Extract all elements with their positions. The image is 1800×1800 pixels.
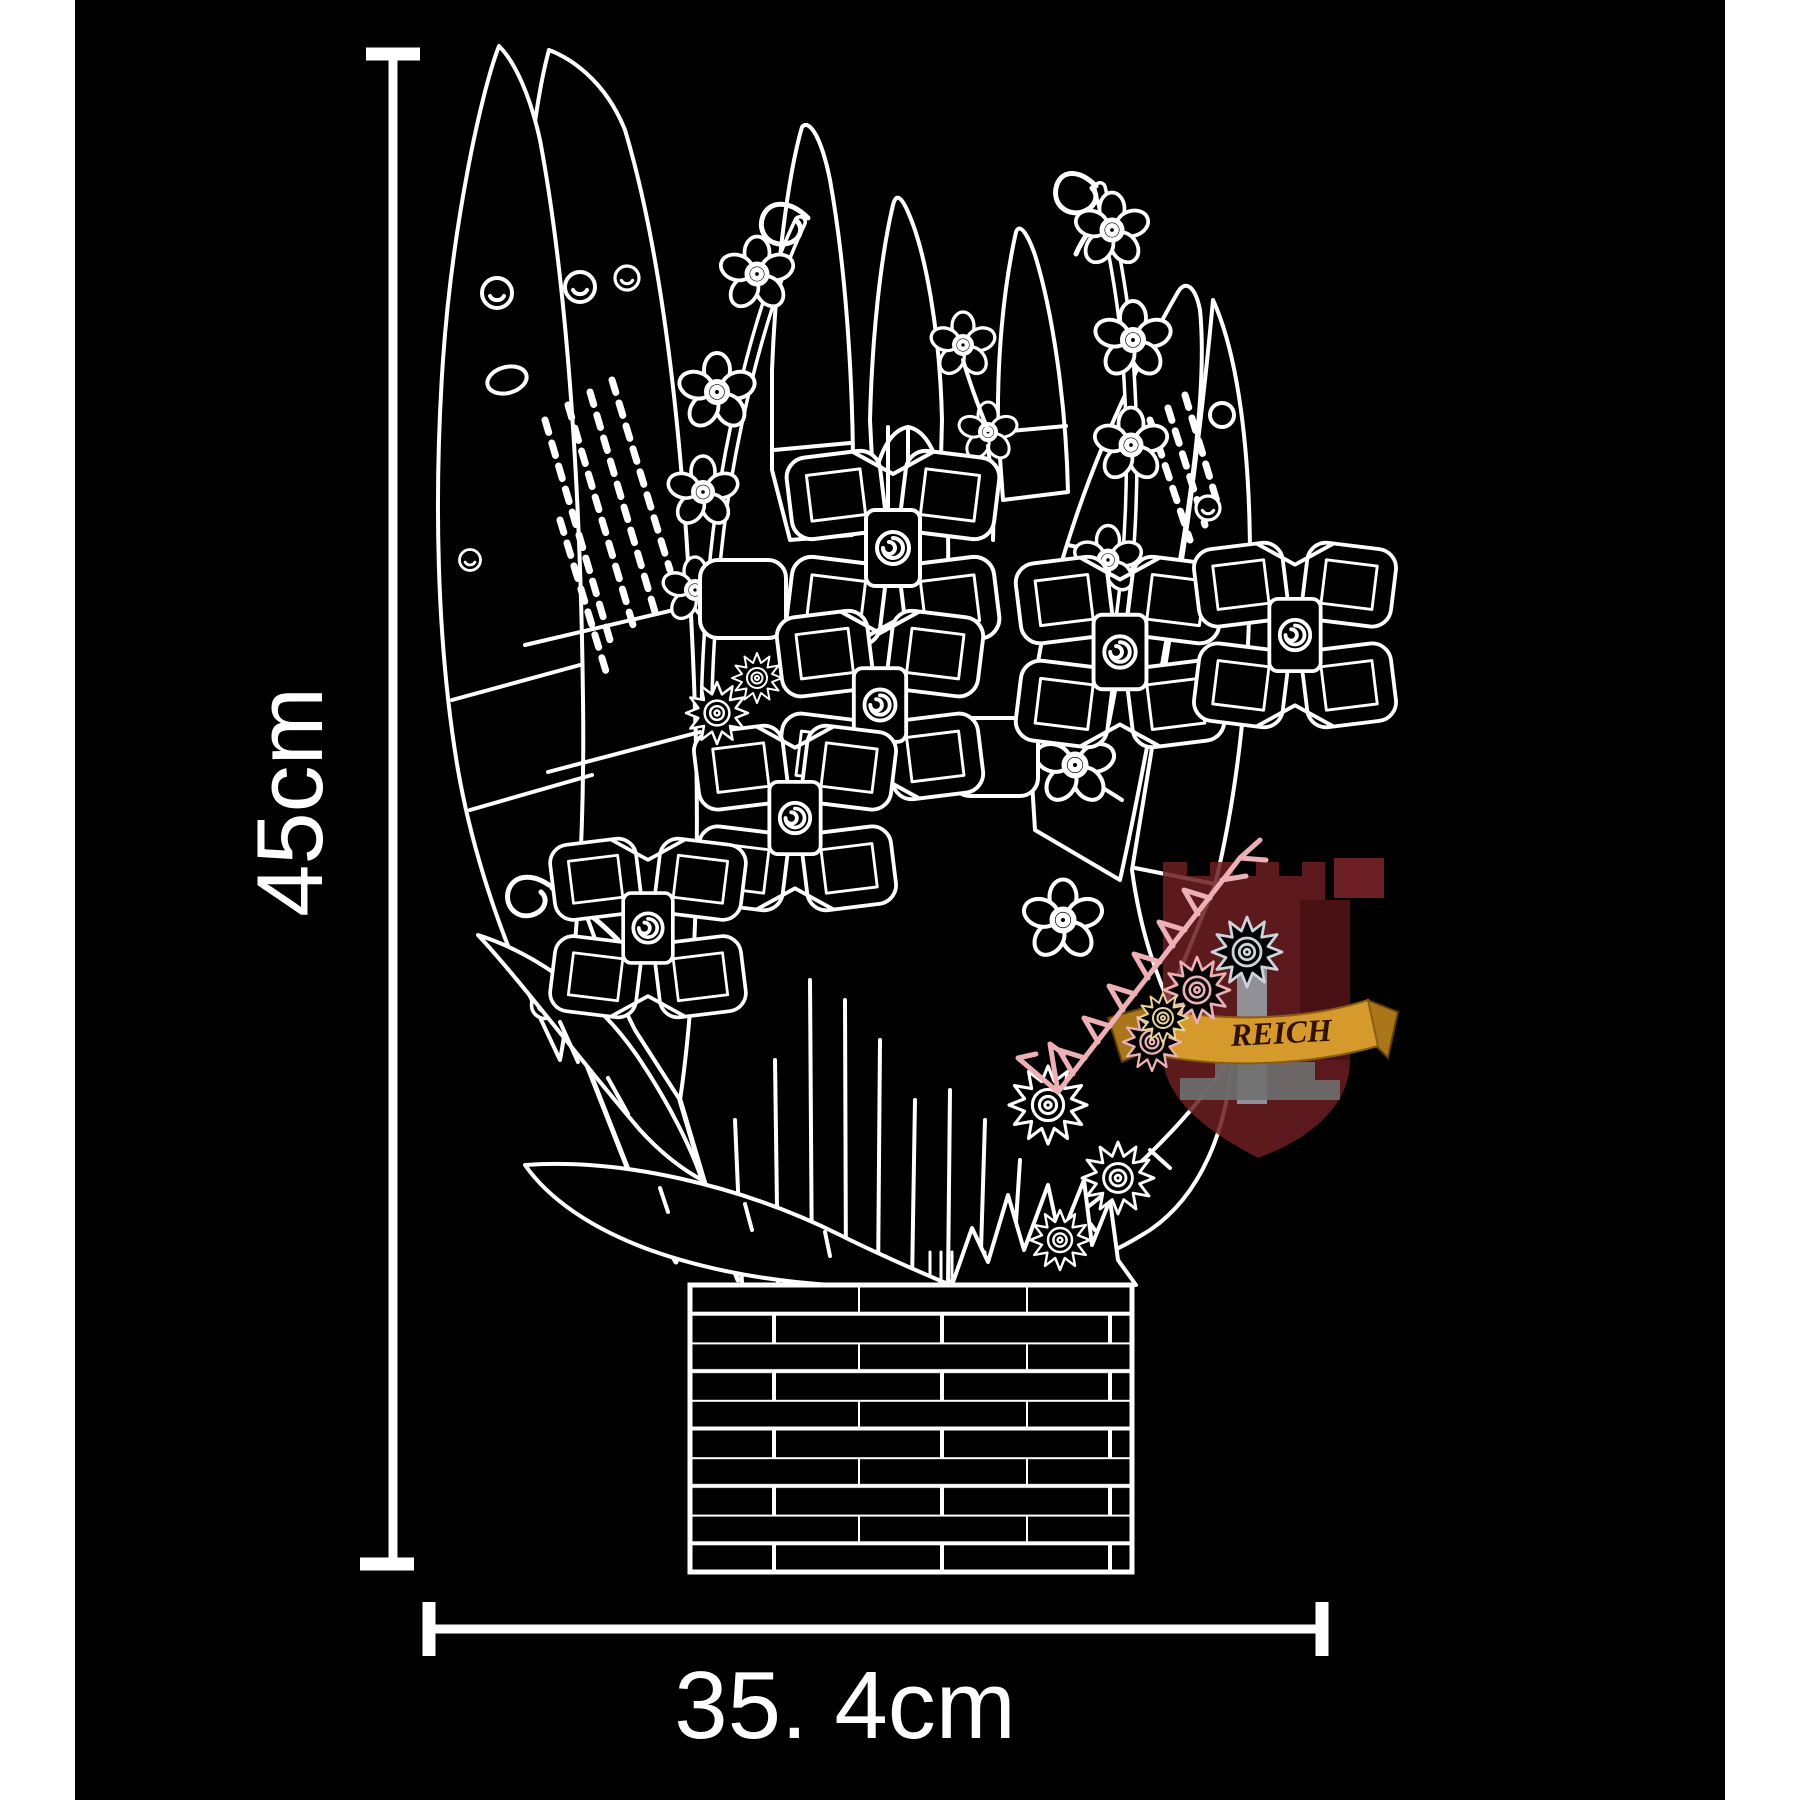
banner-text: REICH	[1229, 1012, 1334, 1053]
castle-side-block	[1334, 858, 1384, 898]
product-dimension-diagram: REICH 45cm	[0, 0, 1800, 1800]
width-label: 35. 4cm	[674, 1652, 1015, 1759]
bouquet-diagram-canvas: REICH 45cm	[0, 0, 1800, 1800]
height-label: 45cm	[237, 687, 342, 917]
brick-pot	[690, 1285, 1132, 1572]
